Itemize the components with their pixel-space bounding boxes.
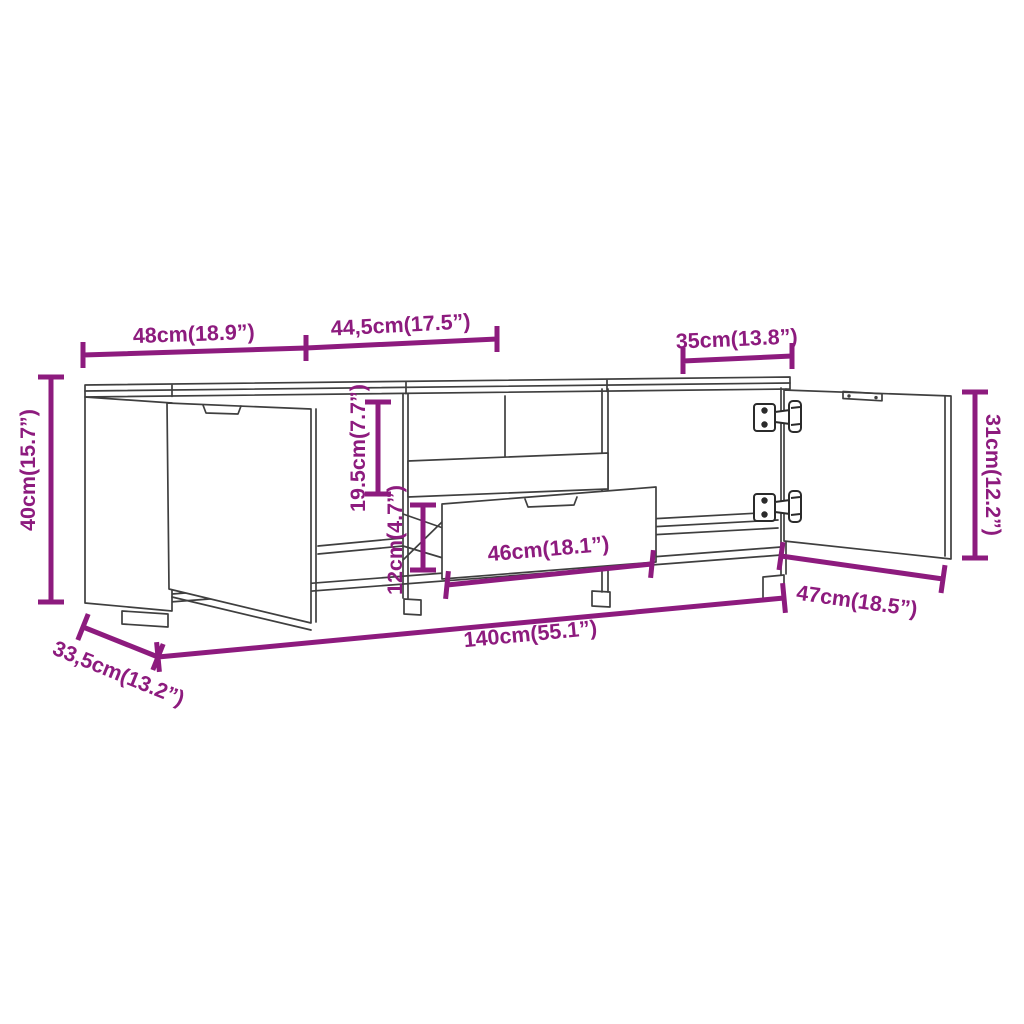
hinge-arm [775, 500, 790, 514]
plate-screw-1 [847, 394, 850, 397]
dim-top-left-width-label: 48cm(18.9”) [132, 320, 255, 348]
hinge-screw-icon [761, 407, 767, 413]
dim-overall-depth: 33,5cm(13.2”) [49, 614, 188, 711]
hinge-bottom [754, 491, 801, 522]
dim-top-middle-width-label: 44,5cm(17.5”) [330, 309, 471, 340]
dim-drawer-gap-height: 12cm(4.7”) [383, 485, 436, 595]
foot-mid-right [592, 591, 610, 607]
dim-overall-width-label: 140cm(55.1”) [463, 616, 599, 652]
hinge-cup [789, 401, 801, 432]
right-door-open [784, 390, 951, 559]
upper-drawer-front [408, 453, 608, 497]
dim-top-right-width-label: 35cm(13.8”) [675, 324, 798, 353]
dim-overall-depth-label: 33,5cm(13.2”) [49, 636, 188, 711]
product-dimension-diagram: 48cm(18.9”) 44,5cm(17.5”) 35cm(13.8”) 40… [0, 0, 1024, 1024]
hinge-cup [789, 491, 801, 522]
dim-door-height-label: 31cm(12.2”) [981, 414, 1005, 536]
dim-compartment-height-label: 19.5cm(7.7”) [346, 384, 370, 512]
dim-overall-height: 40cm(15.7”) [16, 377, 64, 602]
hinge-screw-icon [761, 511, 767, 517]
dim-door-width-label: 47cm(18.5”) [795, 581, 919, 622]
dim-top-right-width: 35cm(13.8”) [675, 324, 798, 374]
plate-screw-2 [874, 396, 877, 399]
dim-overall-height-label: 40cm(15.7”) [16, 409, 40, 531]
dim-door-height: 31cm(12.2”) [962, 392, 1005, 558]
foot-left [122, 611, 168, 627]
hinge-screw-icon [761, 421, 767, 427]
dim-drawer-gap-height-label: 12cm(4.7”) [383, 485, 407, 595]
hinge-arm [775, 410, 790, 424]
left-side-panel [85, 397, 172, 611]
hinge-screw-icon [761, 497, 767, 503]
foot-mid-left [404, 599, 421, 615]
dim-top-left-width: 48cm(18.9”) [83, 320, 306, 368]
diagram-canvas: 48cm(18.9”) 44,5cm(17.5”) 35cm(13.8”) 40… [0, 0, 1024, 1024]
left-door [167, 403, 311, 623]
dim-top-middle-width: 44,5cm(17.5”) [306, 309, 497, 352]
hinge-top [754, 401, 801, 432]
